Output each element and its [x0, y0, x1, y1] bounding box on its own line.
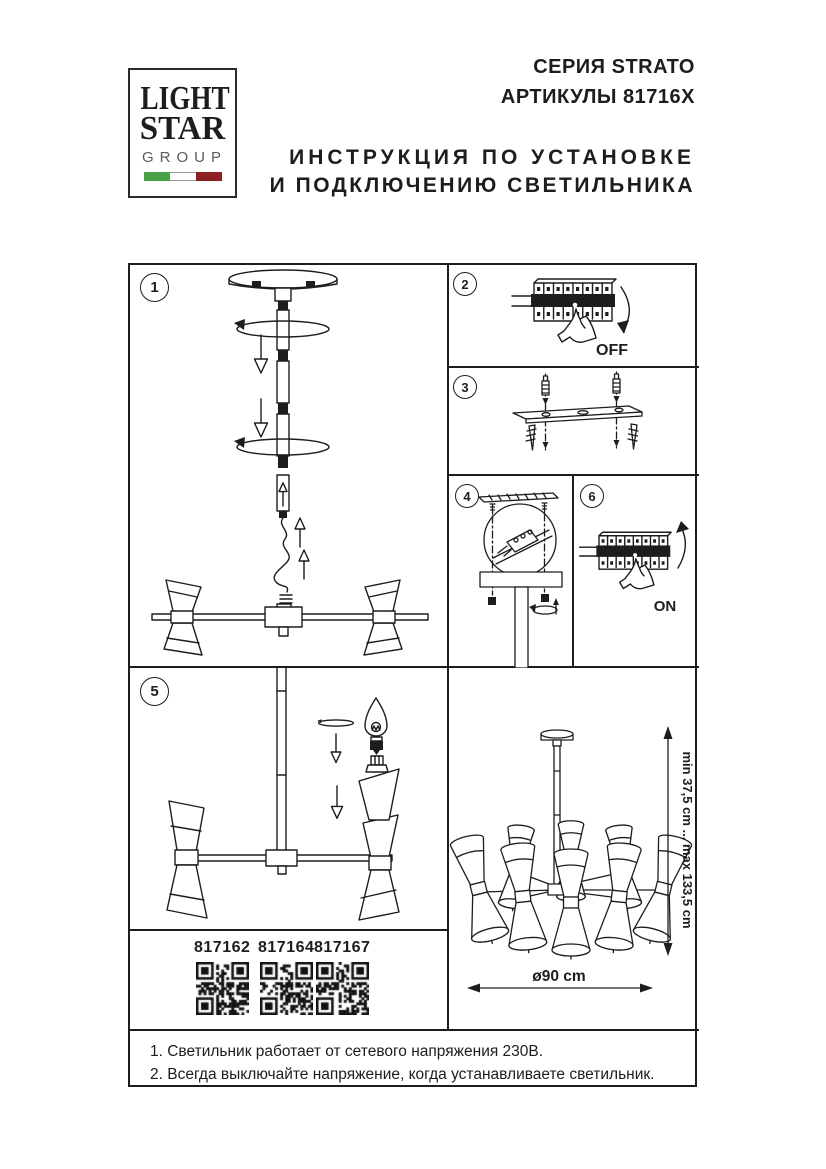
step2-panel: OFF: [449, 265, 699, 366]
instruction-title-line1: ИНСТРУКЦИЯ ПО УСТАНОВКЕ: [270, 144, 695, 172]
qr-panel: 817162 817164 817167: [130, 931, 447, 1029]
step1-assembly-diagram: [130, 265, 447, 666]
off-label: OFF: [596, 342, 628, 359]
note-line-2: 2. Всегда выключайте напряжение, когда у…: [150, 1063, 699, 1086]
on-label: ON: [654, 598, 677, 615]
step2-breaker-off-diagram: OFF: [449, 265, 699, 366]
qr-code-image: [196, 962, 249, 1015]
instruction-title-line2: И ПОДКЛЮЧЕНИЮ СВЕТИЛЬНИКА: [270, 172, 695, 200]
logo-text-star: STAR: [132, 114, 234, 144]
step5-shade-install-diagram: [130, 668, 447, 929]
height-range-label: min 37,5 cm ... max 133,5 cm: [680, 751, 695, 928]
qr-item-817164: 817164: [258, 939, 314, 1015]
diameter-label: ø90 cm: [532, 968, 585, 985]
qr-item-817167: 817167: [314, 939, 370, 1015]
flag-white: [170, 172, 196, 181]
step1-panel: [130, 265, 447, 666]
step1-badge: 1: [140, 273, 169, 302]
lightstar-logo: LIGHT STAR GROUP: [128, 68, 237, 198]
step5-panel: [130, 668, 447, 929]
qr-code-image: [260, 962, 313, 1015]
step2-badge: 2: [453, 272, 477, 296]
instruction-title: ИНСТРУКЦИЯ ПО УСТАНОВКЕ И ПОДКЛЮЧЕНИЮ СВ…: [270, 144, 695, 200]
qr-item-817162: 817162: [194, 939, 250, 1015]
dimensions-panel: min 37,5 cm ... max 133,5 cm ø90 cm: [449, 668, 699, 1029]
step6-badge: 6: [580, 484, 604, 508]
series-title: СЕРИЯ STRATO: [270, 52, 695, 82]
step3-panel: [449, 368, 699, 474]
qr-label: 817162: [194, 939, 250, 957]
document-header: СЕРИЯ STRATO АРТИКУЛЫ 81716X ИНСТРУКЦИЯ …: [270, 52, 695, 200]
flag-red: [196, 172, 222, 181]
qr-label: 817164: [258, 939, 314, 957]
step3-bracket-diagram: [449, 368, 699, 474]
articles-title: АРТИКУЛЫ 81716X: [270, 82, 695, 112]
qr-code-image: [316, 962, 369, 1015]
qr-label: 817167: [314, 939, 370, 957]
logo-text-group: GROUP: [134, 149, 235, 166]
fixture-dimensions-diagram: min 37,5 cm ... max 133,5 cm ø90 cm: [449, 668, 699, 1029]
diagram-grid: 1 2 3 4 6 5: [128, 263, 697, 1087]
notes-section: 1. Светильник работает от сетевого напря…: [130, 1031, 699, 1089]
step4-badge: 4: [455, 484, 479, 508]
instruction-sheet: LIGHT STAR GROUP СЕРИЯ STRATO АРТИКУЛЫ 8…: [0, 0, 826, 1169]
note-line-1: 1. Светильник работает от сетевого напря…: [150, 1040, 699, 1063]
italian-flag-bar: [144, 172, 222, 181]
step5-badge: 5: [140, 677, 169, 706]
flag-green: [144, 172, 170, 181]
step3-badge: 3: [453, 375, 477, 399]
